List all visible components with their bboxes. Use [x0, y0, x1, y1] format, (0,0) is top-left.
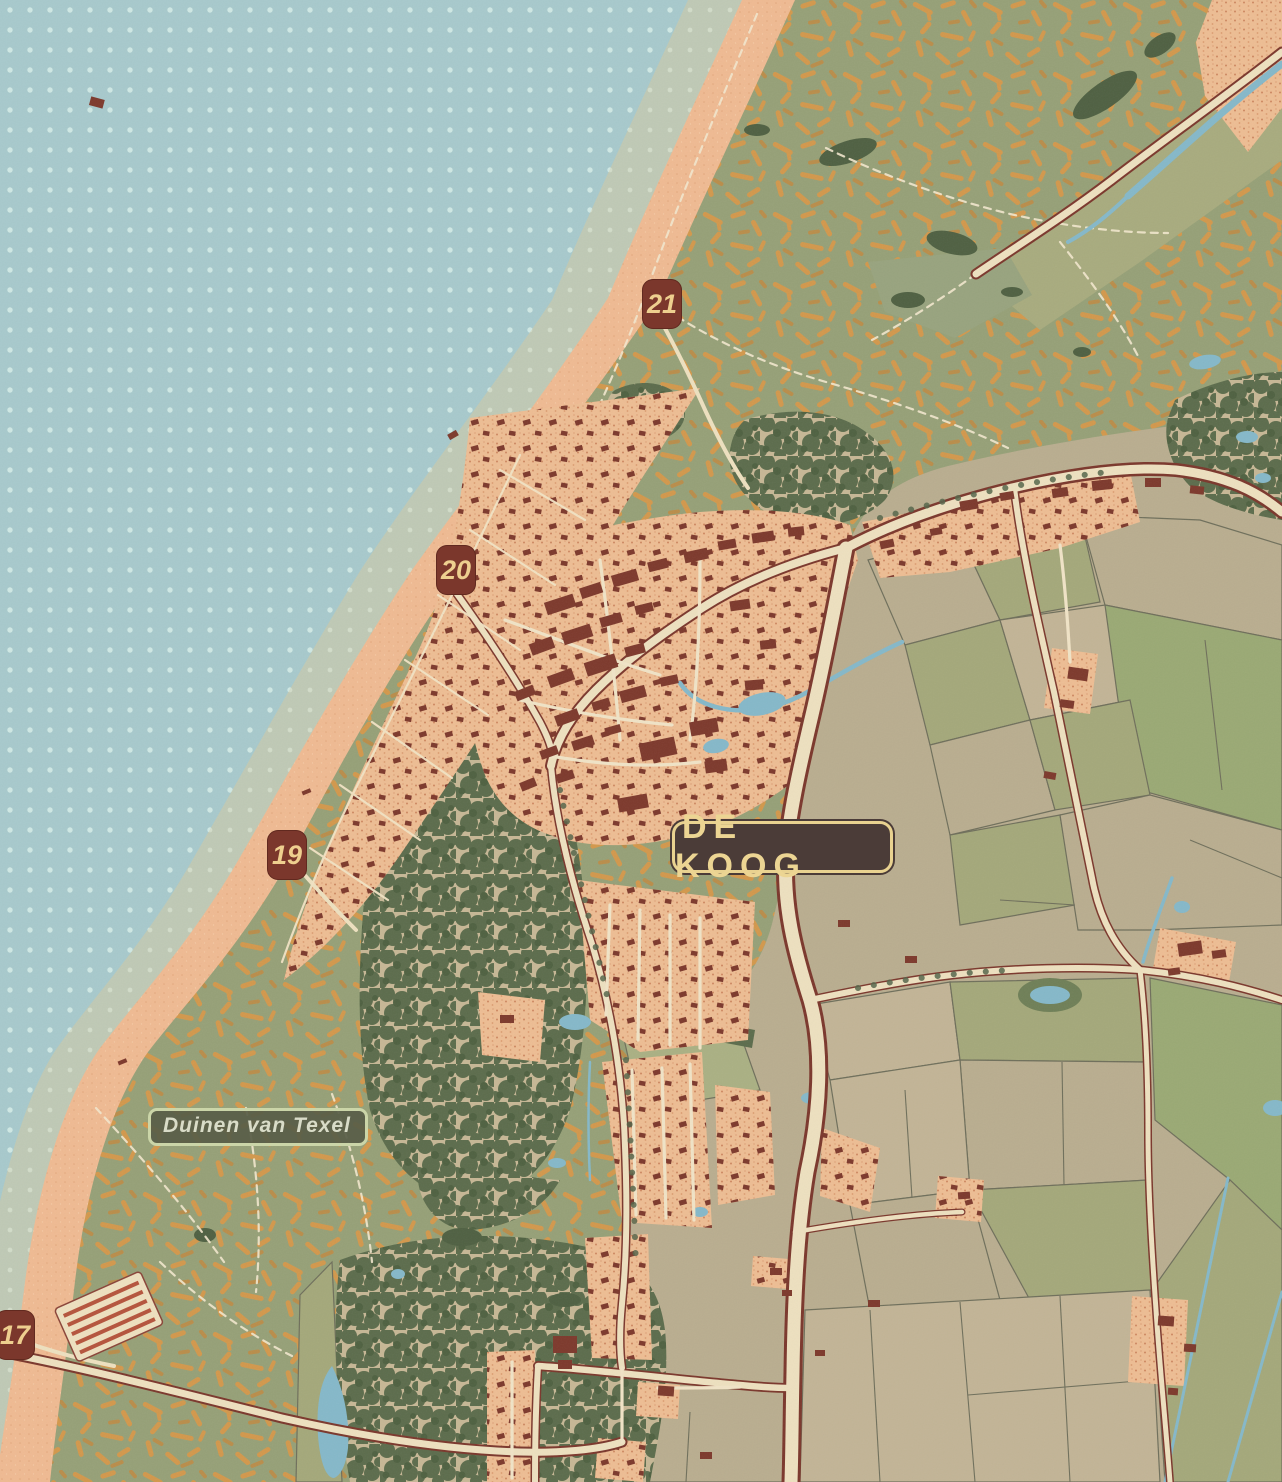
beach-post-17[interactable]: 17 — [0, 1310, 35, 1360]
base-map — [0, 0, 1282, 1482]
nature-area-label[interactable]: Duinen van Texel — [148, 1108, 368, 1146]
beach-post-20-number: 20 — [441, 555, 471, 586]
beach-post-20[interactable]: 20 — [436, 545, 476, 595]
village-name-text: DE KOOG — [675, 808, 890, 886]
beach-post-19[interactable]: 19 — [267, 830, 307, 880]
beach-post-21-number: 21 — [647, 289, 677, 320]
nature-area-text: Duinen van Texel — [163, 1114, 351, 1137]
paper-grain — [0, 0, 1282, 1482]
beach-post-19-number: 19 — [272, 840, 302, 871]
beach-post-17-number: 17 — [0, 1320, 30, 1351]
village-name-label[interactable]: DE KOOG — [672, 821, 893, 873]
beach-post-21[interactable]: 21 — [642, 279, 682, 329]
map-canvas[interactable]: DE KOOG Duinen van Texel 21 20 19 17 — [0, 0, 1282, 1482]
